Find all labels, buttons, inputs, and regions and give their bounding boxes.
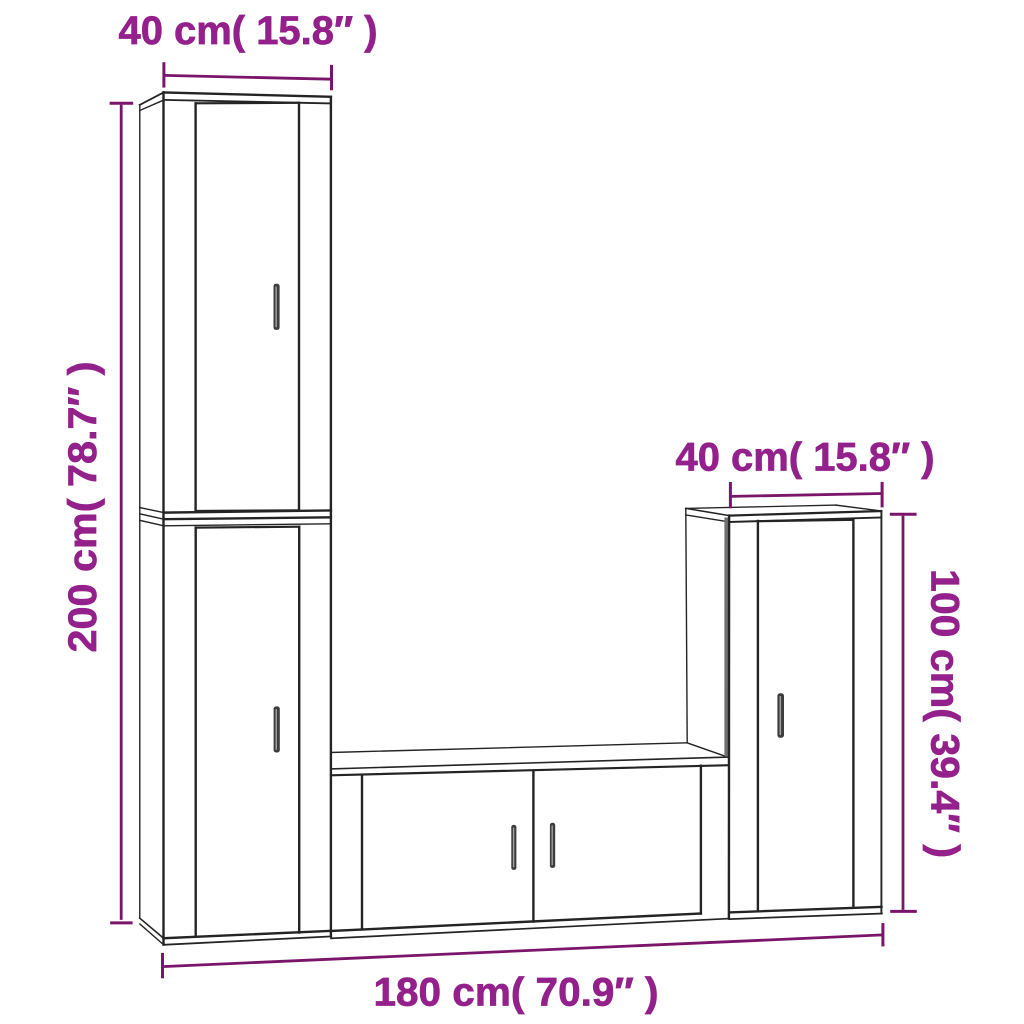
svg-text:200 cm( 78.7″ ): 200 cm( 78.7″ ) bbox=[61, 362, 105, 653]
svg-text:180 cm( 70.9″ ): 180 cm( 70.9″ ) bbox=[374, 971, 659, 1015]
svg-text:40 cm( 15.8″ ): 40 cm( 15.8″ ) bbox=[676, 436, 935, 480]
svg-text:100 cm( 39.4″ ): 100 cm( 39.4″ ) bbox=[923, 569, 967, 858]
svg-text:40 cm( 15.8″ ): 40 cm( 15.8″ ) bbox=[119, 9, 378, 53]
